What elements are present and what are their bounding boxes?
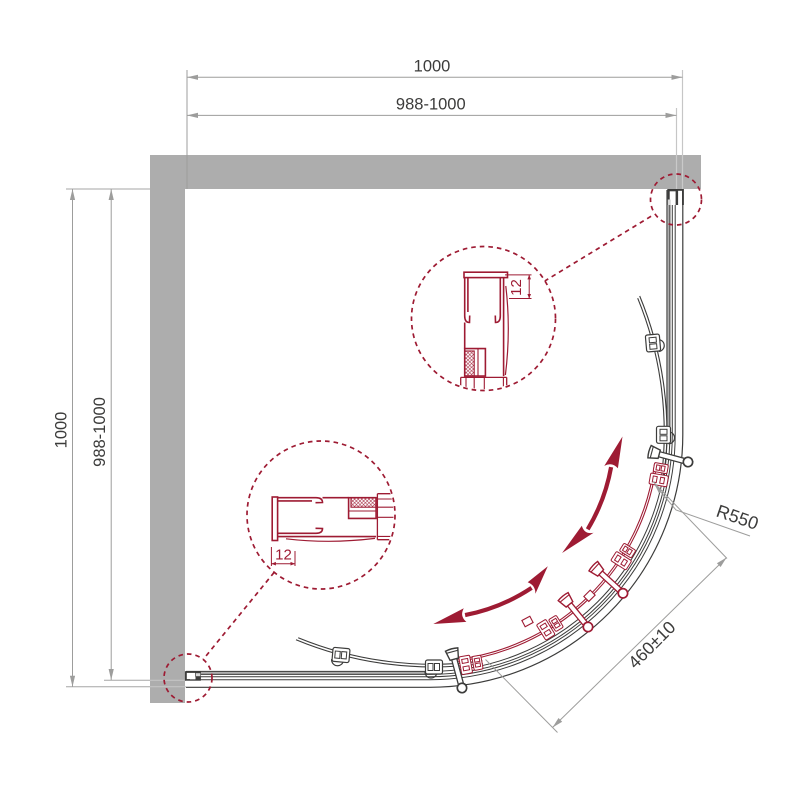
svg-text:988-1000: 988-1000 [91, 397, 109, 467]
svg-text:12: 12 [508, 279, 525, 296]
svg-text:12: 12 [275, 547, 292, 564]
svg-text:1000: 1000 [414, 58, 451, 76]
svg-text:1000: 1000 [53, 412, 71, 449]
svg-text:988-1000: 988-1000 [396, 96, 466, 114]
